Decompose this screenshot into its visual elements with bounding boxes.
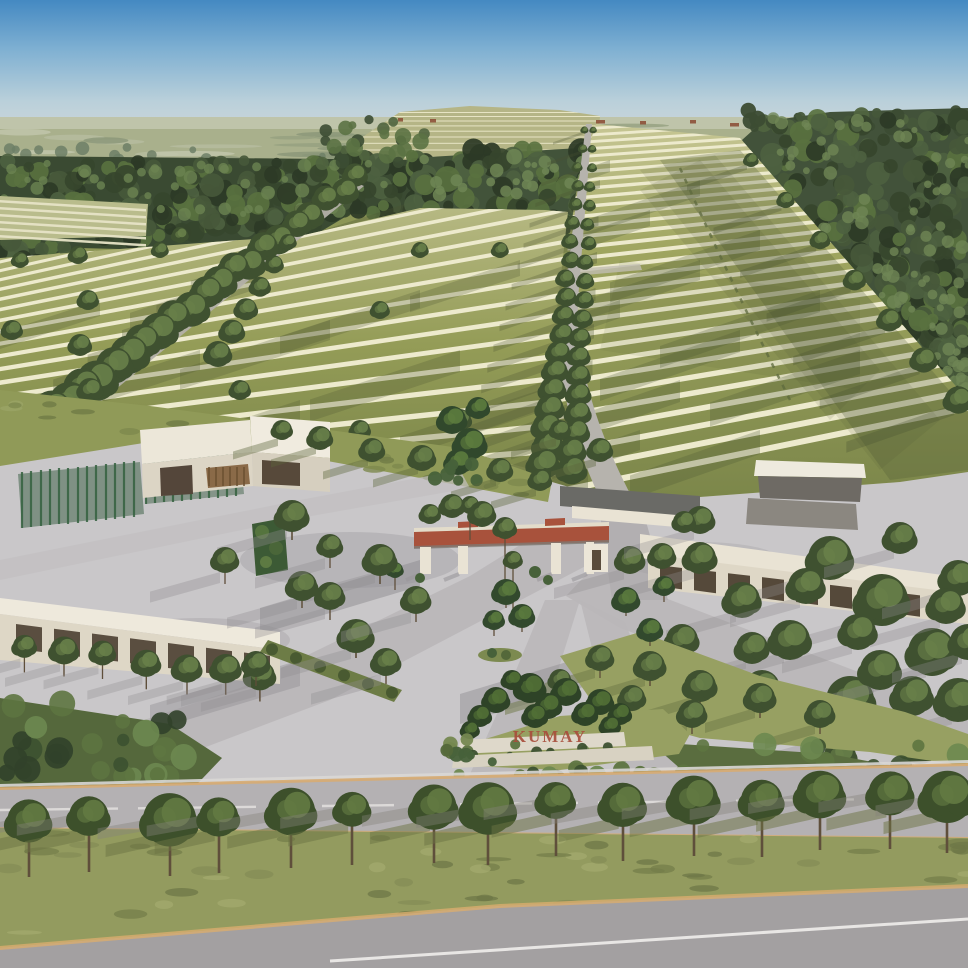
svg-text:KUMAY: KUMAY: [513, 727, 588, 746]
